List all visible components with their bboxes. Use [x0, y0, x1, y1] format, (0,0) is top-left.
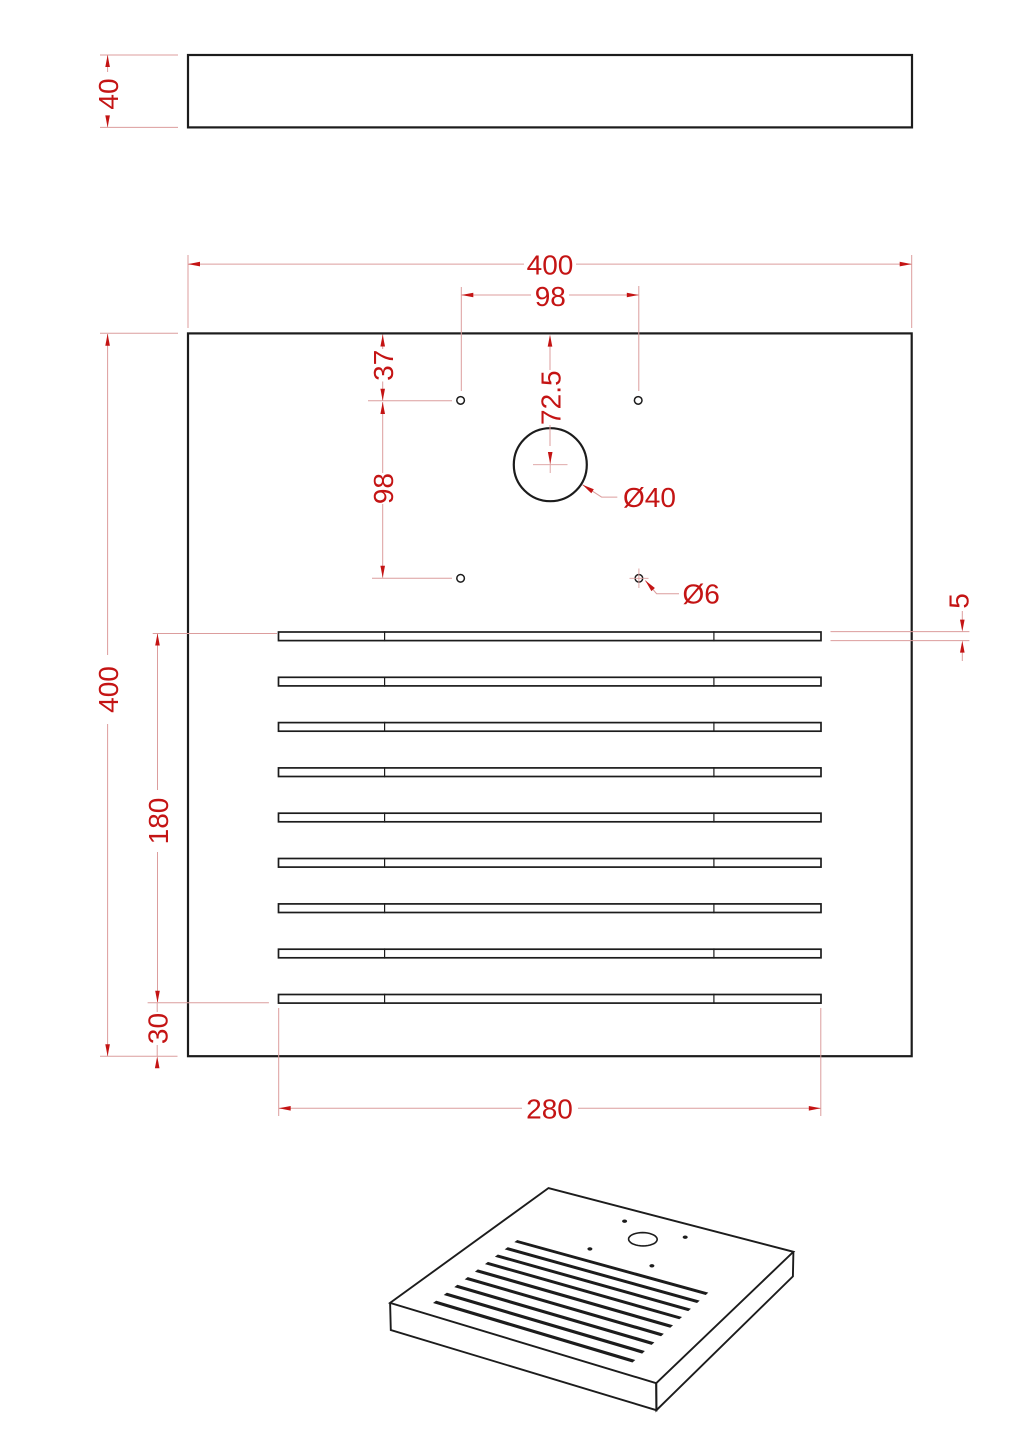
svg-text:40: 40: [93, 78, 124, 109]
svg-text:400: 400: [527, 249, 574, 280]
svg-text:Ø6: Ø6: [683, 579, 720, 610]
svg-text:180: 180: [143, 798, 174, 845]
svg-text:98: 98: [535, 281, 566, 312]
svg-text:400: 400: [93, 666, 124, 713]
svg-text:37: 37: [368, 350, 399, 381]
svg-text:72.5: 72.5: [535, 370, 566, 425]
svg-text:5: 5: [944, 593, 975, 609]
svg-text:98: 98: [368, 473, 399, 504]
svg-text:Ø40: Ø40: [623, 482, 676, 513]
svg-text:280: 280: [526, 1094, 573, 1125]
svg-text:30: 30: [143, 1013, 174, 1044]
